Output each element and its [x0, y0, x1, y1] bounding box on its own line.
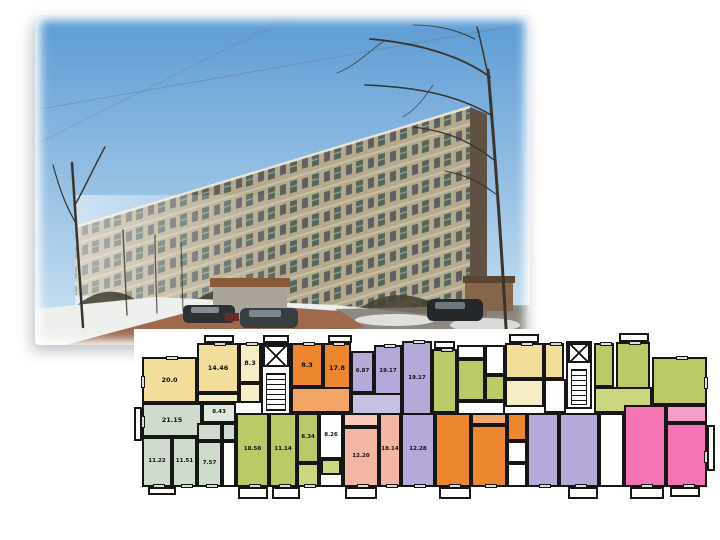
hall: [197, 393, 239, 403]
room-area-label: 12.20: [352, 454, 369, 460]
hall: [297, 463, 319, 487]
room-area-label: 8.43: [212, 410, 226, 416]
room-17-8: 17.8: [323, 343, 351, 393]
corridor: [222, 441, 236, 487]
bath: [197, 423, 222, 441]
room-yellow: [544, 343, 564, 379]
window-mark: [249, 484, 261, 488]
balcony: [707, 425, 715, 471]
building-photo: [35, 15, 530, 345]
window-mark: [704, 451, 708, 463]
corridor: [507, 463, 527, 487]
window-mark: [683, 484, 695, 488]
window-mark: [600, 342, 612, 346]
car: [183, 305, 239, 323]
room-lavender: [527, 413, 559, 487]
hall: [239, 383, 261, 403]
room-green: [457, 359, 485, 401]
room-area-label: 19.17: [379, 369, 396, 375]
hall: [471, 413, 507, 425]
room-area-label: 12.28: [409, 447, 426, 453]
window-mark: [141, 416, 145, 428]
hall: [343, 413, 379, 427]
window-mark: [413, 340, 425, 344]
room-green: [616, 342, 650, 389]
corridor: [485, 345, 505, 375]
room-orange: [507, 413, 527, 441]
room-area-label: 18.58: [244, 447, 261, 453]
window-mark: [521, 342, 533, 346]
room-20-0: 20.0: [142, 357, 197, 403]
window-mark: [449, 484, 461, 488]
bath: [222, 423, 236, 441]
window-mark: [676, 356, 688, 360]
window-mark: [384, 344, 396, 348]
room-area-label: 18.14: [381, 447, 398, 453]
room-yellow: [505, 343, 544, 379]
room-19-17-a: 19.17: [374, 345, 402, 399]
room-8-3-a: 8.3: [239, 343, 261, 383]
room-area-label: 6.87: [356, 369, 370, 375]
room-area-label: 11.22: [148, 459, 165, 465]
corridor: [544, 379, 566, 413]
room-7-57: 7.57: [197, 441, 222, 487]
building-photo-art: [35, 15, 530, 345]
window-mark: [279, 484, 291, 488]
window-mark: [629, 341, 641, 345]
closet: [485, 375, 505, 401]
snow-patch: [355, 314, 435, 326]
room-area-label: 14.46: [208, 365, 229, 372]
room-12-28: 12.28: [401, 413, 435, 487]
room-8-3-b: 8.3: [291, 343, 323, 387]
window-mark: [641, 484, 653, 488]
room-area-label: 20.0: [161, 377, 177, 384]
window-mark: [441, 348, 453, 352]
room-area-label: 8.26: [324, 433, 338, 439]
room-green-large: [652, 357, 707, 405]
room-area-label: 8.3: [244, 360, 256, 367]
room-orange: [435, 413, 471, 487]
room-18-14: 18.14: [379, 413, 401, 487]
balcony: [439, 487, 471, 499]
room-area-label: 11.14: [274, 447, 291, 453]
room-lavender: [559, 413, 599, 487]
window-mark: [303, 342, 315, 346]
room-14-46: 14.46: [197, 343, 239, 393]
balcony: [345, 487, 377, 499]
hall: [505, 379, 544, 407]
room-area-label: 17.8: [329, 365, 345, 372]
window-mark: [206, 484, 218, 488]
hall: [291, 387, 351, 413]
elevator-shaft: [263, 345, 289, 367]
bath: [507, 441, 527, 463]
room-18-58: 18.58: [236, 413, 269, 487]
room-area-label: 7.57: [203, 461, 217, 467]
window-mark: [166, 356, 178, 360]
window-mark: [575, 484, 587, 488]
balcony: [568, 487, 598, 499]
balcony: [263, 335, 289, 343]
corridor-8-43: 8.43: [202, 403, 236, 423]
elevator-shaft: [568, 343, 590, 363]
window-mark: [181, 484, 193, 488]
car: [240, 308, 298, 328]
window-mark: [704, 377, 708, 389]
room-6-87: 6.87: [351, 351, 374, 393]
balcony: [630, 487, 664, 499]
room-8-34: 8.34: [297, 413, 319, 463]
room-green: [594, 343, 614, 387]
room-area-label: 8.34: [301, 435, 315, 441]
room-green: [432, 349, 457, 413]
stairs: [571, 369, 587, 405]
room-pink: [666, 423, 707, 487]
window-mark: [246, 342, 258, 346]
floorplan: 20.014.468.38.317.86.8719.1719.1721.1511…: [134, 329, 720, 513]
room-21-15: 21.15: [142, 403, 202, 437]
room-area-label: 19.17: [408, 376, 425, 382]
stairs: [266, 373, 286, 411]
window-mark: [304, 484, 316, 488]
room-11-51: 11.51: [172, 437, 197, 487]
window-mark: [485, 484, 497, 488]
window-mark: [141, 376, 145, 388]
room-12-20: 12.20: [343, 427, 379, 487]
room-11-14: 11.14: [269, 413, 297, 487]
room-orange: [471, 425, 507, 487]
balcony: [238, 487, 268, 499]
window-mark: [539, 484, 551, 488]
balcony: [148, 487, 176, 495]
balcony: [670, 487, 700, 497]
window-mark: [153, 484, 165, 488]
room-area-label: 21.15: [162, 417, 183, 424]
window-mark: [386, 484, 398, 488]
window-mark: [414, 484, 426, 488]
balcony: [272, 487, 300, 499]
room-19-17-b: 19.17: [402, 341, 432, 417]
room-8-26: 8.26: [319, 413, 343, 459]
closet: [321, 459, 341, 475]
window-mark: [357, 484, 369, 488]
corridor: [599, 413, 624, 487]
hall: [351, 393, 402, 415]
corridor: [457, 345, 485, 359]
window-mark: [333, 342, 345, 346]
room-11-22: 11.22: [142, 437, 172, 487]
window-mark: [550, 342, 562, 346]
room-area-label: 8.3: [301, 362, 313, 369]
room-pink: [624, 405, 666, 487]
room-area-label: 11.51: [176, 459, 193, 465]
car: [427, 299, 483, 321]
window-mark: [214, 342, 226, 346]
hall: [666, 405, 707, 423]
